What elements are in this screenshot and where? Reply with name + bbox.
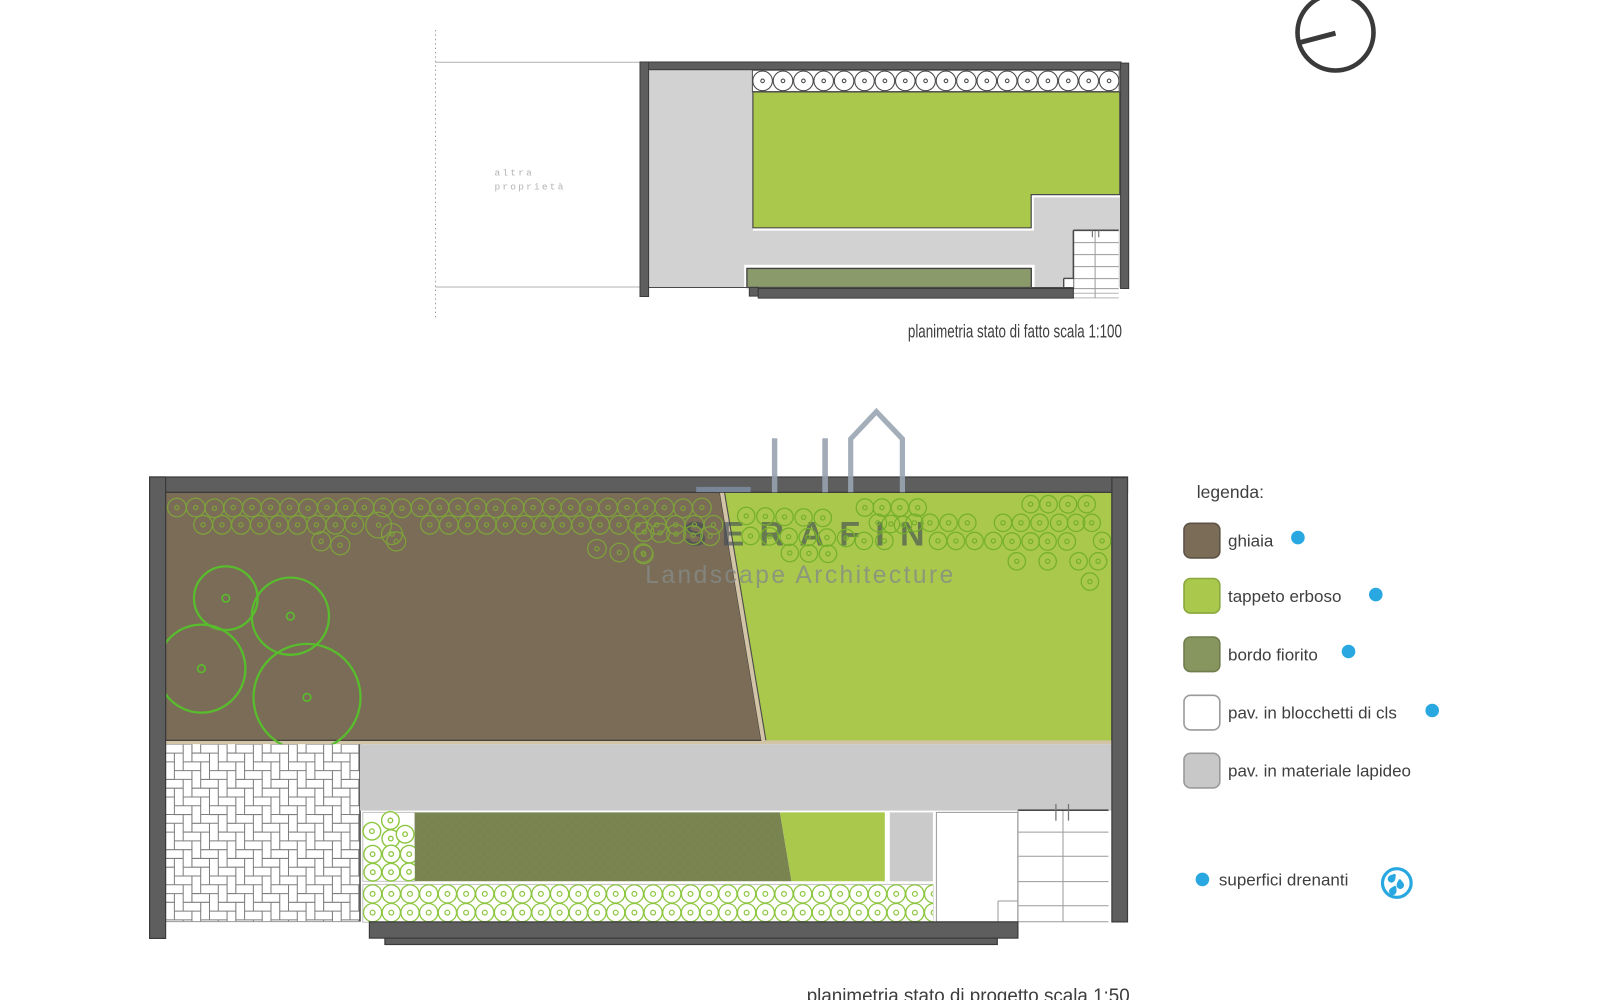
- svg-text:proprietà: proprietà: [495, 182, 566, 193]
- svg-text:ghiaia: ghiaia: [1228, 532, 1274, 551]
- svg-text:superfici drenanti: superfici drenanti: [1219, 871, 1348, 890]
- svg-text:planimetria stato di fatto sca: planimetria stato di fatto scala 1:100: [908, 321, 1122, 342]
- svg-text:legenda:: legenda:: [1197, 482, 1264, 502]
- svg-text:tappeto erboso: tappeto erboso: [1228, 587, 1341, 606]
- svg-text:planimetria stato di progetto: planimetria stato di progetto scala 1:50: [807, 986, 1130, 1000]
- svg-text:altra: altra: [495, 168, 535, 179]
- svg-text:pav. in materiale lapideo: pav. in materiale lapideo: [1228, 762, 1411, 781]
- svg-text:bordo fiorito: bordo fiorito: [1228, 645, 1318, 664]
- svg-text:pav. in blocchetti di cls: pav. in blocchetti di cls: [1228, 704, 1397, 723]
